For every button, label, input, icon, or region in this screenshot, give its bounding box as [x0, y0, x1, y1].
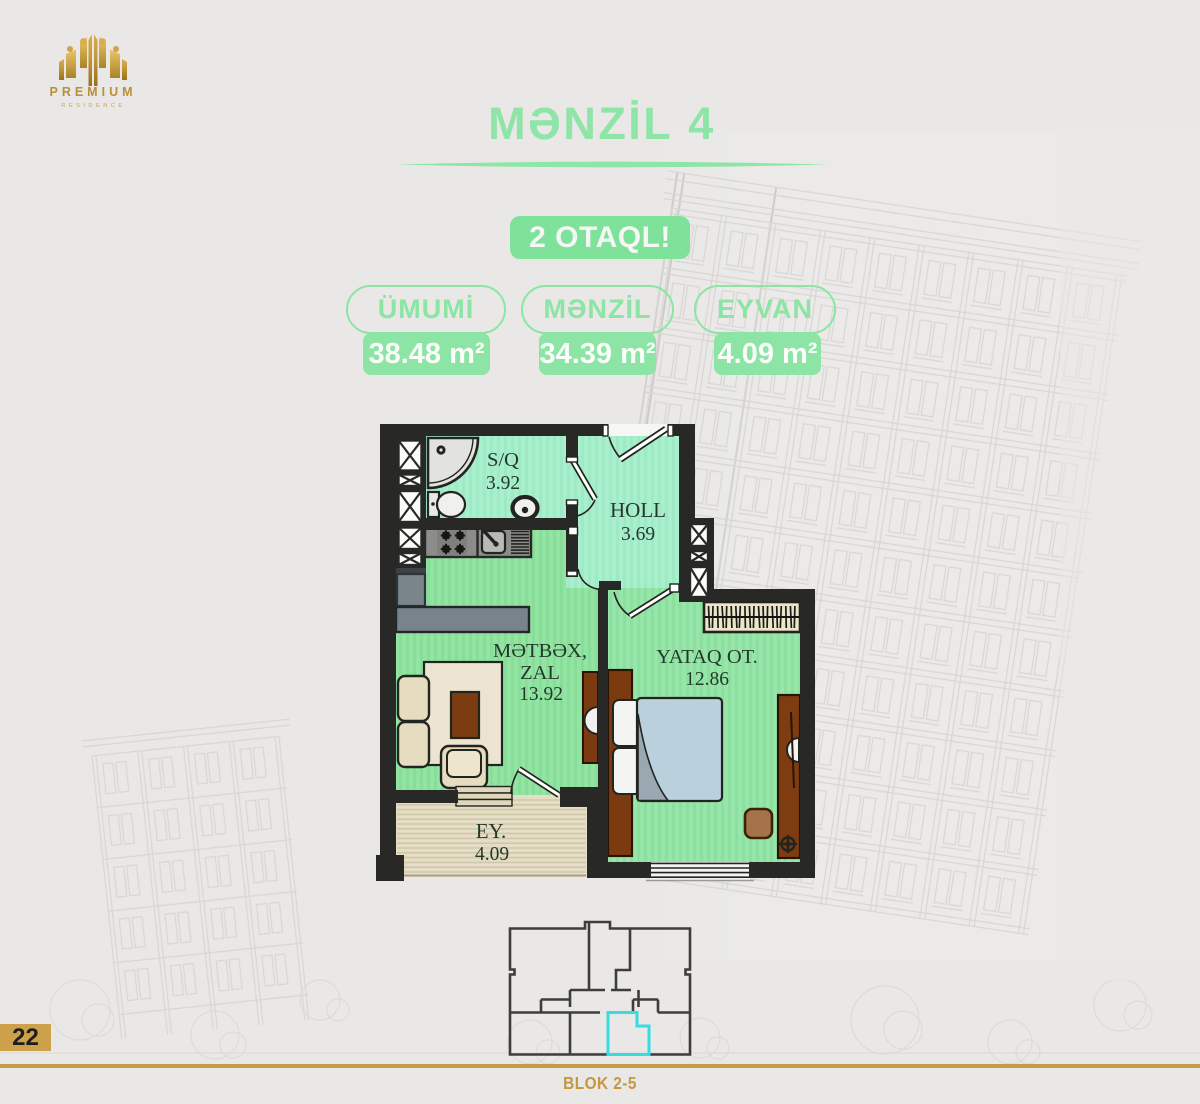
svg-text:3.69: 3.69 — [621, 524, 655, 545]
svg-text:HOLL: HOLL — [610, 498, 666, 522]
svg-text:EY.: EY. — [476, 819, 507, 843]
svg-text:MƏTBƏX,: MƏTBƏX, — [493, 640, 587, 662]
svg-text:4.09: 4.09 — [475, 844, 509, 865]
svg-text:13.92: 13.92 — [519, 684, 563, 705]
svg-text:S/Q: S/Q — [487, 449, 519, 471]
svg-text:3.92: 3.92 — [486, 473, 520, 494]
svg-text:12.86: 12.86 — [685, 669, 729, 690]
svg-text:YATAQ OT.: YATAQ OT. — [656, 646, 758, 668]
svg-text:ZAL: ZAL — [520, 662, 560, 684]
